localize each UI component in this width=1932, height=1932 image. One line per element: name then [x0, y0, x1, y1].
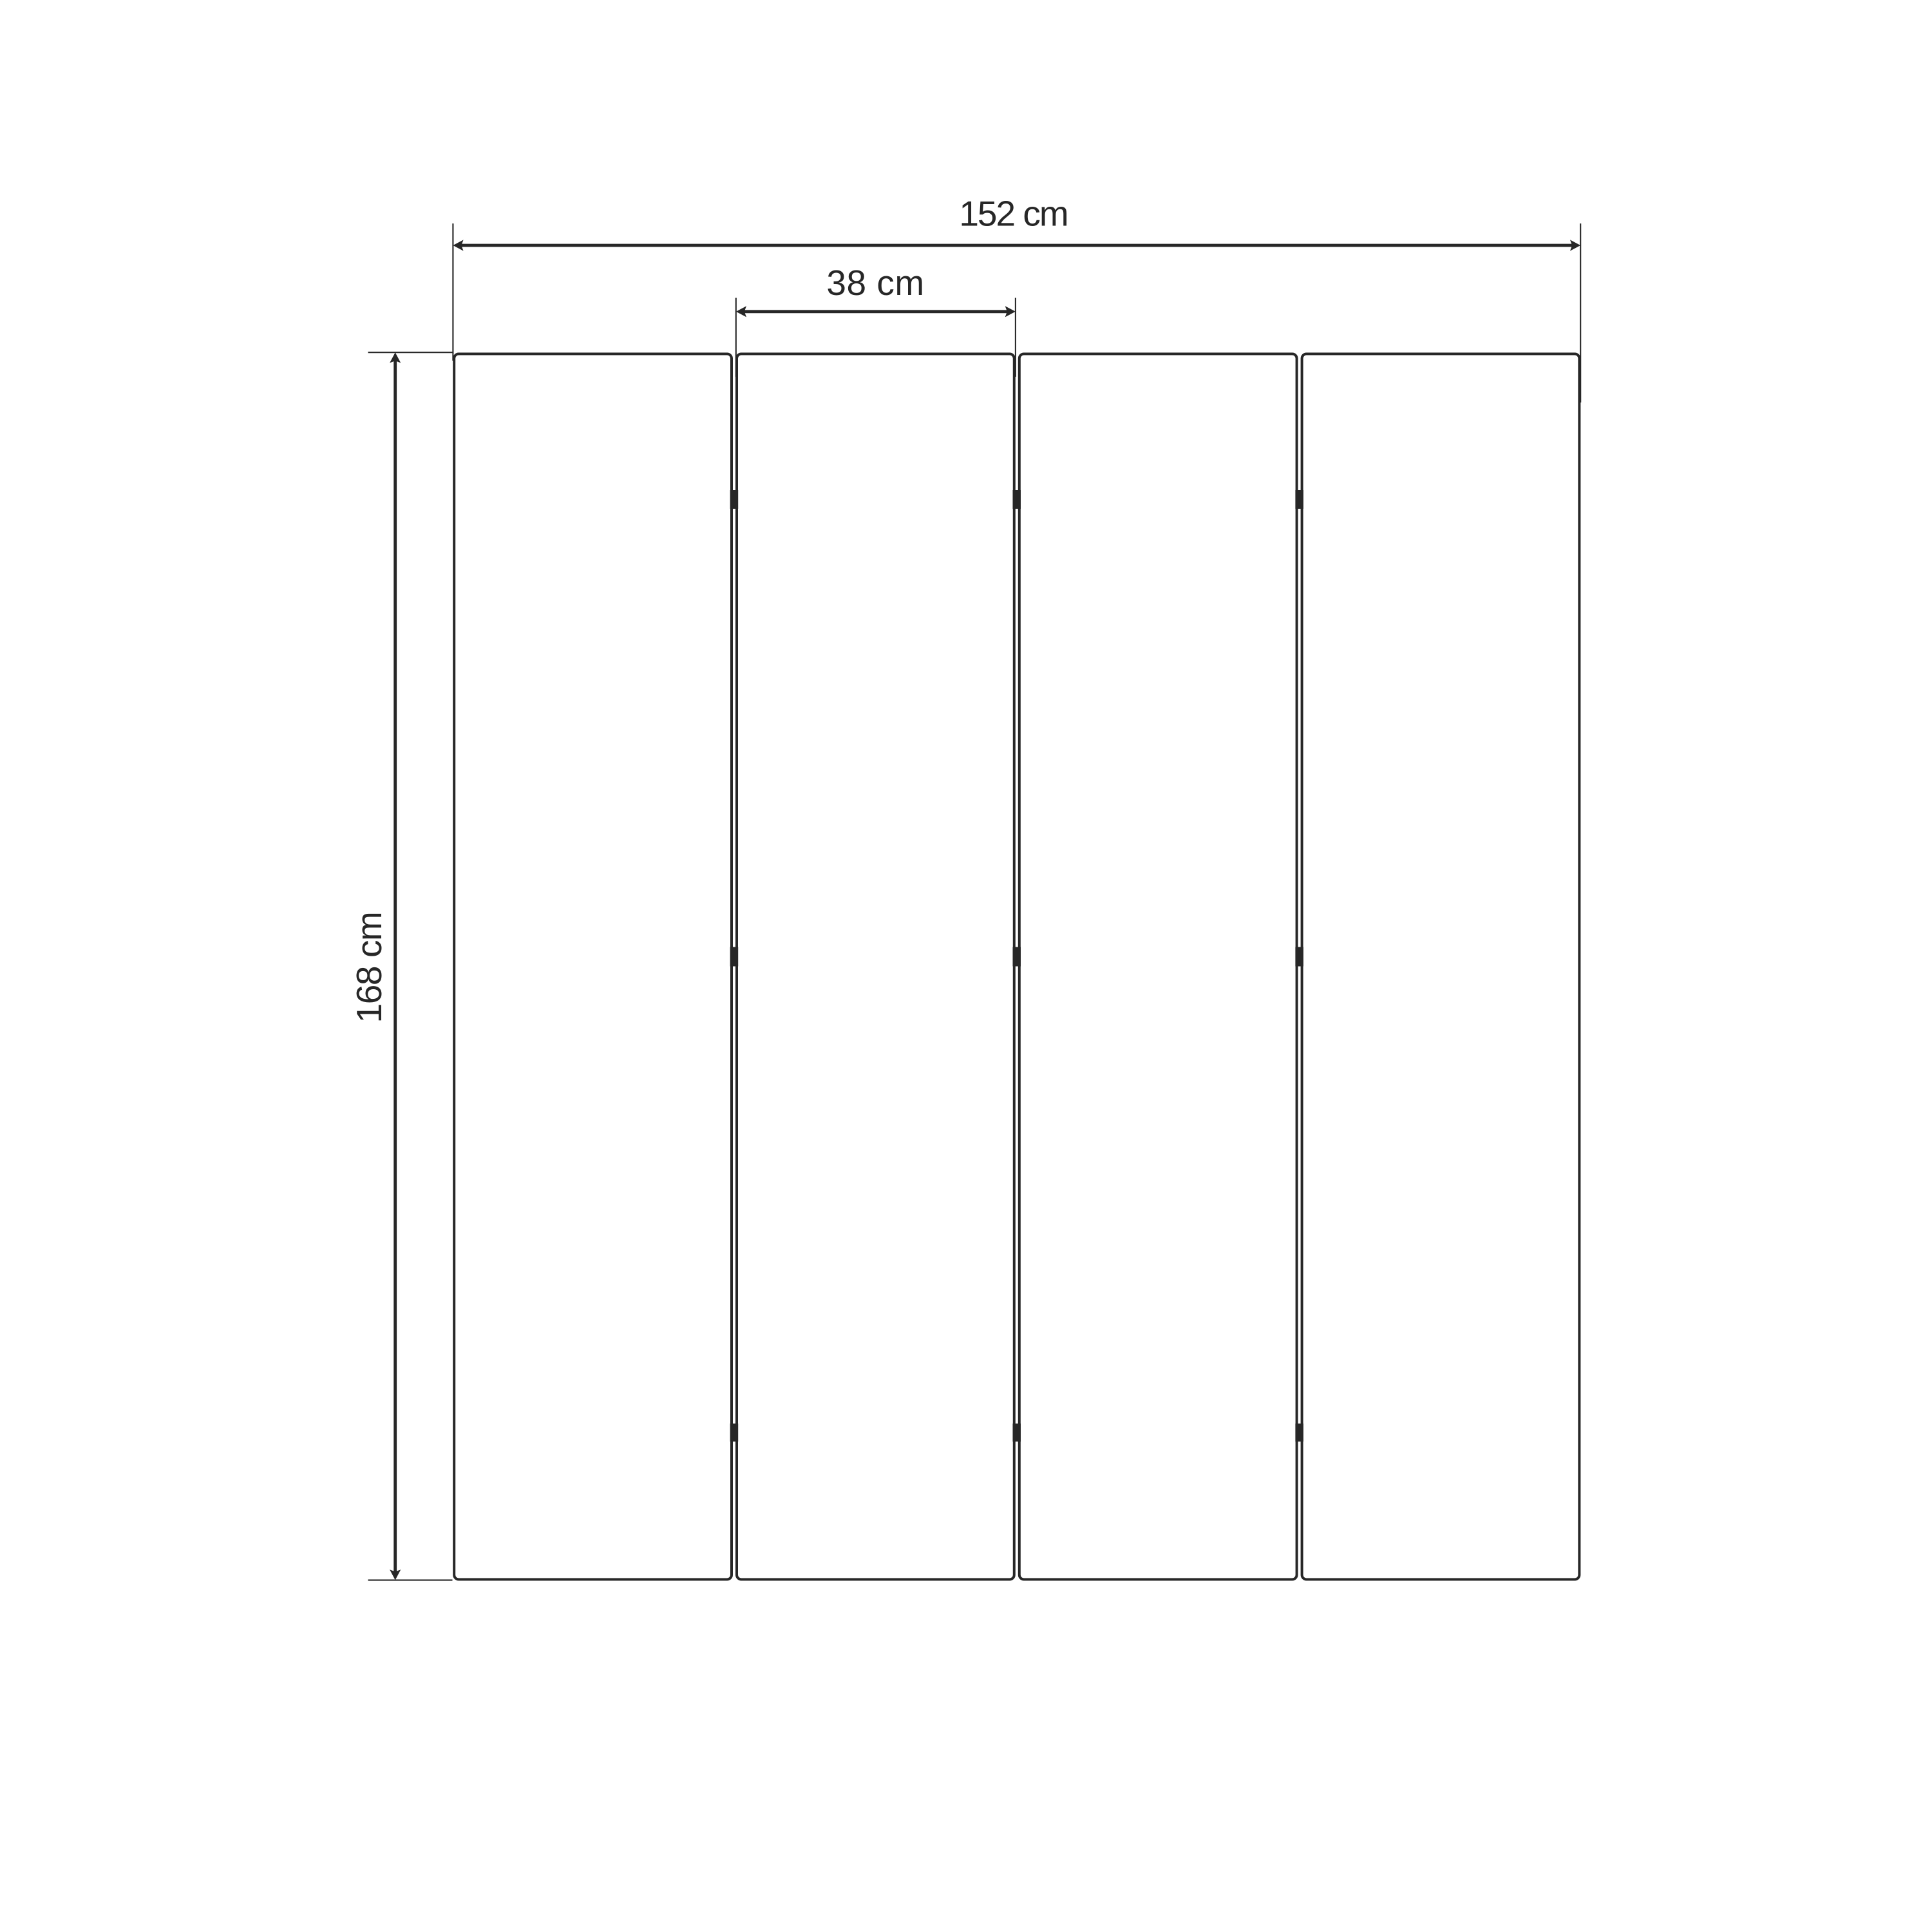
svg-text:168 cm: 168 cm: [349, 913, 389, 1023]
svg-text:152 cm: 152 cm: [959, 194, 1067, 234]
svg-text:38 cm: 38 cm: [826, 263, 924, 303]
